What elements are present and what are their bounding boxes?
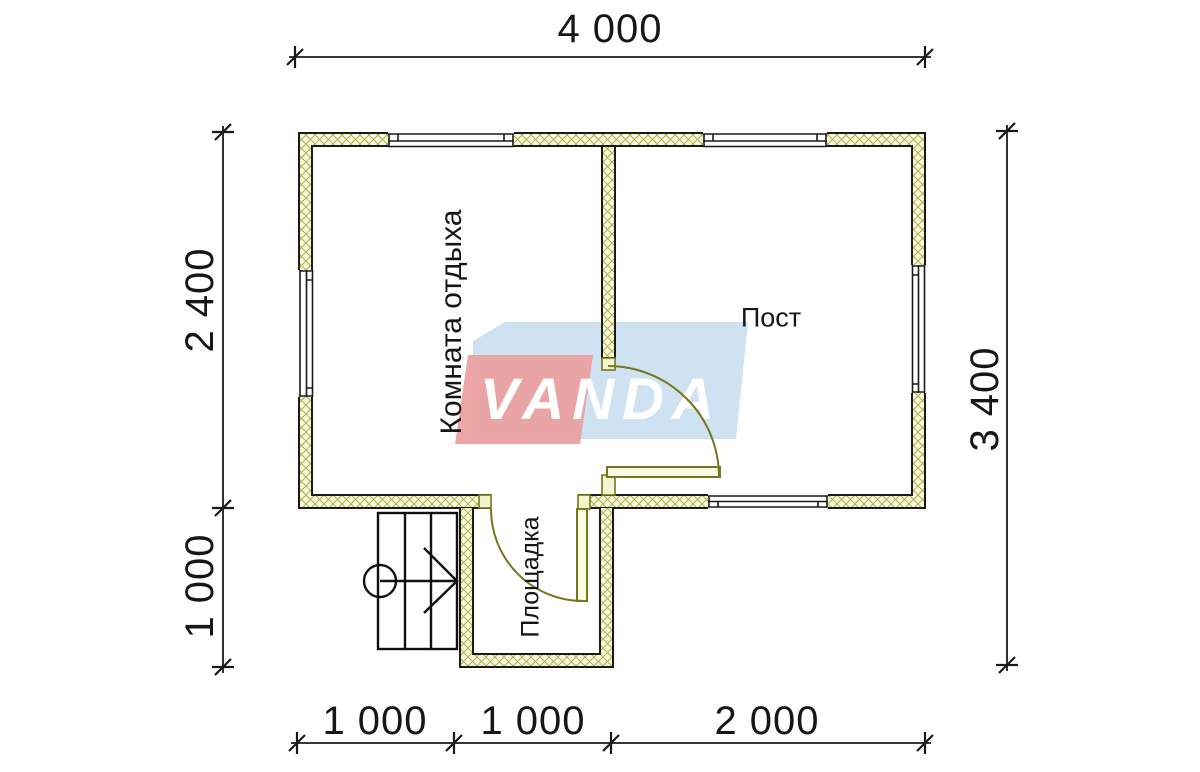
dimension-label-left-lower: 1 000 <box>180 533 220 638</box>
entrance-door-leaf <box>577 509 587 601</box>
entrance-opening <box>491 493 578 510</box>
window-right <box>911 265 927 393</box>
room-label-post: Пост <box>741 305 801 332</box>
dimension-label-bottom-middle: 1 000 <box>480 701 585 741</box>
window-bottom-right <box>708 494 828 510</box>
room-label-landing: Площадка <box>519 516 544 637</box>
floor-plan-drawing: VANDA <box>0 0 1200 772</box>
window-top-right <box>703 132 827 148</box>
dimension-label-left-upper: 2 400 <box>180 247 220 352</box>
dimension-label-bottom-left: 1 000 <box>322 701 427 741</box>
dimension-label-right: 3 400 <box>965 346 1005 451</box>
watermark-text: VANDA <box>480 367 722 432</box>
dimension-label-bottom-right: 2 000 <box>714 701 819 741</box>
stairs <box>364 513 457 649</box>
partition-door-leaf <box>607 467 720 477</box>
window-left <box>298 270 314 397</box>
floor-plan-page: VANDA <box>0 0 1200 772</box>
room-label-rest-room: Комната отдыха <box>437 210 467 435</box>
dimension-label-top: 4 000 <box>557 9 662 49</box>
window-top-left <box>388 132 514 148</box>
partition-door-jamb-top <box>602 358 615 370</box>
entrance-door-jamb-left <box>479 495 491 508</box>
entrance-door-jamb-right <box>578 495 590 509</box>
partition-wall <box>602 146 615 358</box>
